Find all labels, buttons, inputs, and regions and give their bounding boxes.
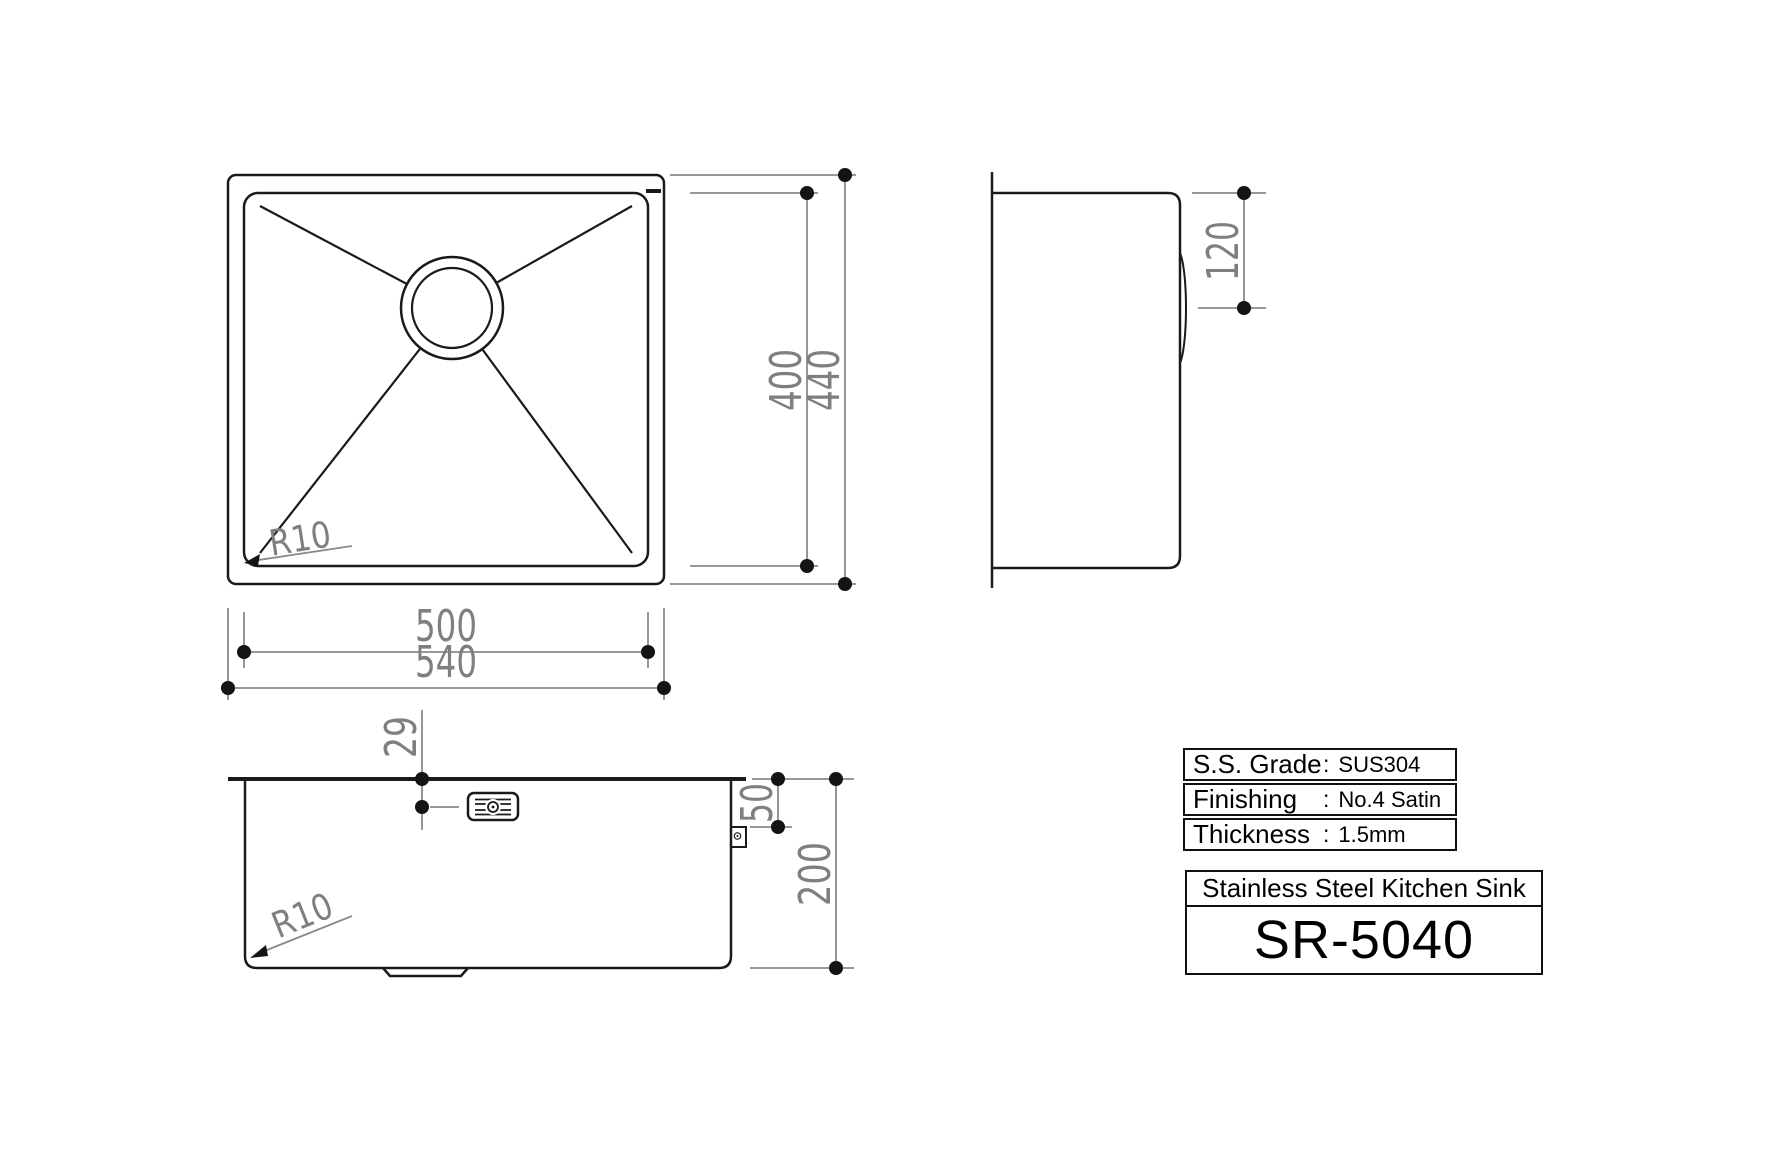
spec-label: Finishing: [1193, 784, 1323, 815]
side-bowl-outline: [992, 193, 1180, 568]
spec-row-finishing: Finishing : No.4 Satin: [1183, 783, 1457, 816]
spec-colon: :: [1323, 786, 1329, 813]
dim-outer-width-label: 540: [415, 637, 477, 688]
front-radius-label: R10: [266, 886, 339, 947]
front-overflow-emboss: [468, 793, 518, 820]
spec-value: 1.5mm: [1338, 822, 1405, 848]
plan-inner-basin: [244, 193, 648, 566]
spec-colon: :: [1323, 751, 1329, 778]
dim-clip-offset-label: 50: [732, 783, 783, 823]
spec-table: S.S. Grade : SUS304 Finishing : No.4 Sat…: [1183, 748, 1457, 853]
title-block: Stainless Steel Kitchen Sink SR-5040: [1185, 870, 1543, 975]
front-radius-callout: R10: [250, 886, 352, 958]
spec-colon: :: [1323, 821, 1329, 848]
plan-radius-callout: R10: [244, 515, 352, 566]
dim-overflow-offset-label: 29: [376, 716, 427, 758]
plan-radius-label: R10: [266, 515, 334, 565]
model-number: SR-5040: [1187, 907, 1541, 973]
dim-clip-depth: 120: [1192, 186, 1266, 315]
drain-outer-circle: [401, 257, 503, 359]
side-view: 120: [992, 172, 1266, 588]
dim-bowl-depth-label: 200: [790, 842, 841, 906]
spec-value: SUS304: [1338, 752, 1420, 778]
spec-label: Thickness: [1193, 819, 1323, 850]
leader-arrow: [250, 945, 268, 958]
front-view: 29 50 200 R10: [228, 710, 854, 976]
dim-outer-height-label: 440: [799, 349, 850, 411]
product-name: Stainless Steel Kitchen Sink: [1187, 872, 1541, 907]
dim-overflow-offset: 29: [376, 710, 459, 830]
front-fixing-clip: [731, 827, 746, 847]
spec-value: No.4 Satin: [1338, 787, 1441, 813]
sink-technical-drawing: R10 500 540 400: [0, 0, 1777, 1153]
spec-row-grade: S.S. Grade : SUS304: [1183, 748, 1457, 781]
spec-label: S.S. Grade: [1193, 749, 1323, 780]
spec-row-thickness: Thickness : 1.5mm: [1183, 818, 1457, 851]
plan-view: R10 500 540 400: [221, 168, 856, 700]
dim-clip-depth-label: 120: [1198, 221, 1249, 281]
